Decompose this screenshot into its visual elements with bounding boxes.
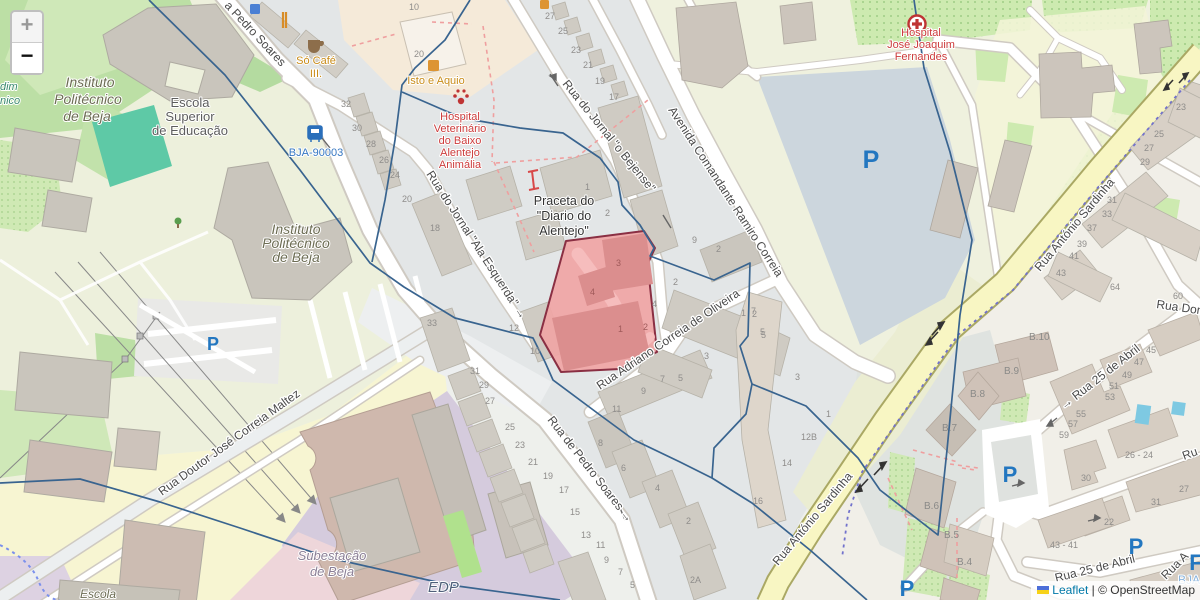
svg-text:EDP: EDP bbox=[428, 579, 459, 596]
svg-text:2: 2 bbox=[605, 208, 610, 218]
svg-text:41: 41 bbox=[1069, 251, 1079, 261]
svg-text:P: P bbox=[207, 334, 219, 354]
svg-text:Escola: Escola bbox=[170, 95, 210, 110]
svg-text:Animália: Animália bbox=[439, 159, 482, 171]
svg-text:18: 18 bbox=[430, 223, 440, 233]
svg-text:15: 15 bbox=[570, 507, 580, 517]
svg-text:2: 2 bbox=[716, 244, 721, 254]
svg-text:39: 39 bbox=[1077, 239, 1087, 249]
svg-text:B.6: B.6 bbox=[924, 501, 939, 512]
svg-text:Fernandes: Fernandes bbox=[895, 51, 948, 63]
svg-text:19: 19 bbox=[543, 471, 553, 481]
svg-text:27: 27 bbox=[1144, 143, 1154, 153]
svg-text:33: 33 bbox=[427, 318, 437, 328]
svg-text:1: 1 bbox=[741, 308, 746, 318]
svg-text:20: 20 bbox=[414, 49, 424, 59]
svg-text:55: 55 bbox=[1076, 409, 1086, 419]
svg-text:27: 27 bbox=[485, 396, 495, 406]
svg-text:Praceta do: Praceta do bbox=[534, 194, 595, 208]
svg-text:37: 37 bbox=[1087, 223, 1097, 233]
svg-text:23: 23 bbox=[515, 440, 525, 450]
svg-text:B.10: B.10 bbox=[1029, 332, 1050, 343]
svg-text:57: 57 bbox=[1068, 419, 1078, 429]
svg-text:17: 17 bbox=[609, 92, 619, 102]
svg-text:27: 27 bbox=[1179, 484, 1189, 494]
svg-text:25: 25 bbox=[505, 422, 515, 432]
svg-text:21: 21 bbox=[583, 60, 593, 70]
svg-text:Isto e Aquio: Isto e Aquio bbox=[407, 75, 465, 87]
svg-text:do Baixo: do Baixo bbox=[439, 135, 482, 147]
svg-text:26 - 24: 26 - 24 bbox=[1125, 450, 1153, 460]
svg-text:9: 9 bbox=[604, 555, 609, 565]
svg-text:49: 49 bbox=[1122, 370, 1132, 380]
svg-text:25: 25 bbox=[1154, 129, 1164, 139]
svg-text:9: 9 bbox=[692, 235, 697, 245]
svg-text:27: 27 bbox=[545, 11, 555, 21]
svg-text:17: 17 bbox=[559, 485, 569, 495]
svg-text:B.7: B.7 bbox=[942, 423, 957, 434]
svg-text:30: 30 bbox=[1081, 473, 1091, 483]
svg-text:60: 60 bbox=[1173, 291, 1183, 301]
svg-text:6: 6 bbox=[621, 463, 626, 473]
svg-text:29: 29 bbox=[479, 380, 489, 390]
svg-text:Só Café: Só Café bbox=[296, 55, 336, 67]
svg-text:8: 8 bbox=[598, 438, 603, 448]
svg-text:64: 64 bbox=[1110, 282, 1120, 292]
svg-text:20: 20 bbox=[402, 194, 412, 204]
svg-text:12: 12 bbox=[509, 323, 519, 333]
svg-text:5: 5 bbox=[678, 373, 683, 383]
svg-text:5: 5 bbox=[630, 580, 635, 590]
svg-text:13: 13 bbox=[581, 530, 591, 540]
svg-text:P: P bbox=[1003, 462, 1018, 487]
svg-text:nico: nico bbox=[0, 95, 20, 107]
svg-text:28: 28 bbox=[366, 139, 376, 149]
svg-text:2: 2 bbox=[643, 322, 648, 332]
svg-text:24: 24 bbox=[390, 170, 400, 180]
svg-text:1: 1 bbox=[618, 324, 623, 334]
svg-text:31: 31 bbox=[470, 366, 480, 376]
svg-text:43 - 41: 43 - 41 bbox=[1050, 540, 1078, 550]
svg-text:7: 7 bbox=[660, 374, 665, 384]
svg-text:19: 19 bbox=[595, 76, 605, 86]
svg-text:1: 1 bbox=[826, 409, 831, 419]
svg-text:2: 2 bbox=[686, 516, 691, 526]
svg-text:21: 21 bbox=[528, 457, 538, 467]
svg-text:de Beja: de Beja bbox=[63, 108, 111, 124]
svg-text:43: 43 bbox=[1056, 268, 1066, 278]
svg-text:BJA-90003: BJA-90003 bbox=[289, 147, 343, 159]
svg-text:2: 2 bbox=[673, 277, 678, 287]
svg-text:Politécnico: Politécnico bbox=[54, 91, 122, 107]
svg-text:B.5: B.5 bbox=[944, 530, 959, 541]
svg-text:P: P bbox=[900, 576, 915, 600]
svg-text:2A: 2A bbox=[690, 575, 701, 585]
svg-text:de Educação: de Educação bbox=[152, 123, 228, 138]
svg-text:30: 30 bbox=[352, 123, 362, 133]
svg-text:33: 33 bbox=[1102, 209, 1112, 219]
svg-text:III.: III. bbox=[310, 68, 322, 80]
svg-text:10: 10 bbox=[530, 346, 540, 356]
svg-text:31: 31 bbox=[1151, 497, 1161, 507]
svg-text:Alentejo": Alentejo" bbox=[539, 224, 589, 238]
svg-text:José Joaquim: José Joaquim bbox=[887, 39, 955, 51]
svg-text:Hospital: Hospital bbox=[440, 111, 480, 123]
svg-text:23: 23 bbox=[571, 45, 581, 55]
svg-text:B.9: B.9 bbox=[1004, 366, 1019, 377]
svg-text:Superior: Superior bbox=[165, 109, 215, 124]
svg-text:53: 53 bbox=[1105, 392, 1115, 402]
svg-text:59: 59 bbox=[1059, 430, 1069, 440]
svg-text:3: 3 bbox=[795, 372, 800, 382]
svg-text:45: 45 bbox=[1146, 345, 1156, 355]
svg-text:Hospital: Hospital bbox=[901, 27, 941, 39]
svg-text:4: 4 bbox=[590, 287, 595, 297]
svg-text:de Beja: de Beja bbox=[272, 249, 320, 265]
svg-text:Veterinário: Veterinário bbox=[434, 123, 487, 135]
svg-text:Alentejo: Alentejo bbox=[440, 147, 480, 159]
svg-text:3: 3 bbox=[704, 351, 709, 361]
svg-text:16: 16 bbox=[753, 496, 763, 506]
svg-text:dim: dim bbox=[0, 81, 18, 93]
svg-text:P: P bbox=[1129, 534, 1144, 559]
svg-text:11: 11 bbox=[612, 404, 621, 414]
svg-text:Instituto: Instituto bbox=[65, 74, 114, 90]
svg-text:7: 7 bbox=[618, 567, 623, 577]
svg-text:23: 23 bbox=[1176, 102, 1186, 112]
svg-text:4: 4 bbox=[655, 483, 660, 493]
svg-text:B.8: B.8 bbox=[970, 389, 985, 400]
svg-text:Escola: Escola bbox=[80, 587, 116, 600]
svg-text:"Diario do: "Diario do bbox=[537, 209, 592, 223]
svg-text:47: 47 bbox=[1134, 357, 1144, 367]
svg-text:4: 4 bbox=[652, 299, 657, 309]
svg-text:31: 31 bbox=[1107, 195, 1117, 205]
svg-text:7: 7 bbox=[751, 306, 756, 316]
svg-text:12B: 12B bbox=[801, 432, 817, 442]
svg-text:51: 51 bbox=[1109, 381, 1119, 391]
svg-text:3: 3 bbox=[616, 258, 621, 268]
svg-text:14: 14 bbox=[782, 458, 792, 468]
svg-text:5: 5 bbox=[760, 327, 765, 337]
svg-text:Subestação: Subestação bbox=[298, 548, 367, 563]
svg-text:11: 11 bbox=[596, 540, 605, 550]
svg-text:32: 32 bbox=[341, 99, 351, 109]
svg-text:de Beja: de Beja bbox=[310, 564, 354, 579]
svg-text:F: F bbox=[1189, 550, 1200, 575]
svg-text:B.4: B.4 bbox=[957, 557, 972, 568]
svg-text:29: 29 bbox=[1140, 157, 1150, 167]
svg-text:1: 1 bbox=[585, 182, 590, 192]
svg-text:25: 25 bbox=[558, 26, 568, 36]
svg-text:9: 9 bbox=[641, 386, 646, 396]
svg-text:22: 22 bbox=[1104, 517, 1114, 527]
svg-text:26: 26 bbox=[379, 155, 389, 165]
svg-text:P: P bbox=[863, 146, 880, 174]
svg-text:10: 10 bbox=[409, 2, 419, 12]
